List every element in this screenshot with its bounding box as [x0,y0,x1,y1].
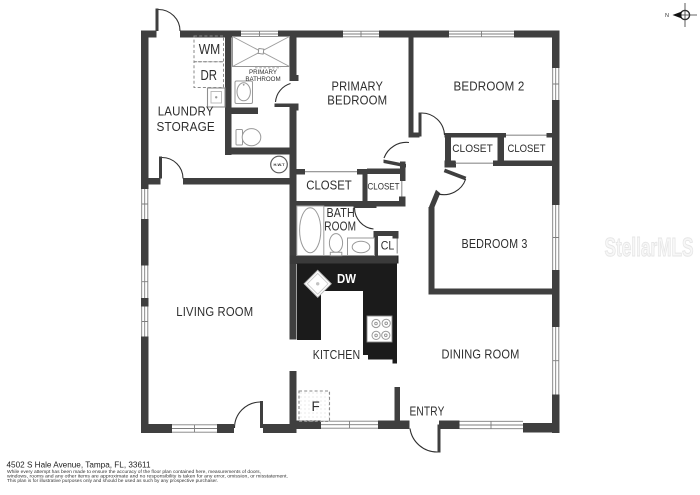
svg-text:ENTRY: ENTRY [410,404,445,419]
svg-text:STORAGE: STORAGE [156,119,215,134]
svg-text:BATHROOM: BATHROOM [245,76,280,83]
svg-text:4502 S Hale Avenue, Tampa, FL,: 4502 S Hale Avenue, Tampa, FL, 33611 [7,460,151,470]
svg-text:WM: WM [199,42,221,58]
svg-text:BEDROOM 2: BEDROOM 2 [454,78,525,93]
svg-text:CL: CL [381,241,395,253]
svg-text:KITCHEN: KITCHEN [313,347,361,362]
svg-text:LIVING ROOM: LIVING ROOM [176,304,253,319]
svg-text:PRIMARY: PRIMARY [249,69,277,76]
svg-text:DINING ROOM: DINING ROOM [442,347,520,362]
svg-text:LAUNDRY: LAUNDRY [158,103,214,118]
svg-text:BEDROOM: BEDROOM [327,93,387,108]
svg-text:CLOSET: CLOSET [508,143,546,155]
svg-text:DR: DR [200,68,217,84]
svg-text:This plan is for illustrative: This plan is for illustrative purposes o… [7,478,218,483]
svg-text:CLOSET: CLOSET [452,143,493,155]
svg-text:PRIMARY: PRIMARY [332,79,384,94]
svg-text:N: N [665,13,669,19]
svg-text:StellarMLS: StellarMLS [605,232,694,262]
svg-text:CLOSET: CLOSET [306,179,352,193]
svg-text:F: F [312,399,320,414]
svg-text:CLOSET: CLOSET [368,182,400,192]
svg-text:ROOM: ROOM [324,219,356,234]
svg-text:DW: DW [337,271,357,286]
svg-text:H.W.T: H.W.T [273,162,285,167]
svg-text:BEDROOM 3: BEDROOM 3 [462,236,528,251]
